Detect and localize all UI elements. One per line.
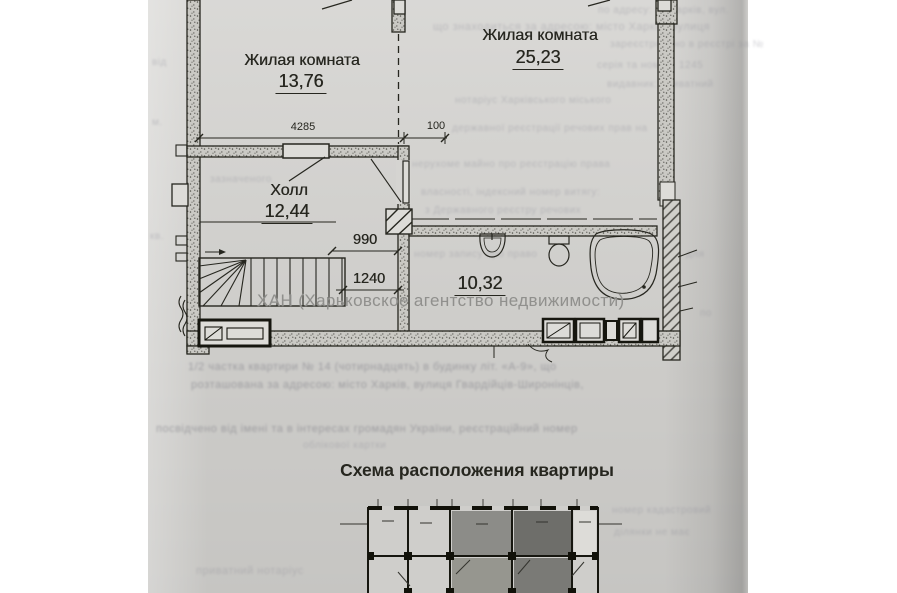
room-area-value: 25,23 — [512, 47, 563, 70]
room-label: Жилая комната — [482, 27, 598, 45]
scanned-document-photo: по адресу: м. Харків, вул. що знаходитьс… — [0, 0, 897, 593]
dimension-label: 1240 — [353, 271, 385, 287]
location-scheme-plan — [340, 499, 622, 593]
vent-shaft — [386, 209, 412, 234]
scheme-title: Схема расположения квартиры — [340, 460, 614, 481]
toilet-icon — [549, 236, 569, 266]
sink-icon — [480, 234, 505, 257]
room-area: 25,23 — [512, 47, 563, 68]
room-area-value: 12,44 — [261, 201, 312, 224]
dimension-label: 100 — [427, 120, 445, 132]
room-area-value: 13,76 — [275, 71, 326, 94]
dimension-label: 4285 — [291, 121, 315, 133]
agency-watermark: ХАН (Харьковское агентство недвижимости) — [257, 291, 625, 311]
cabinet — [199, 320, 270, 346]
bathtub-icon — [590, 230, 658, 300]
appliances — [543, 319, 658, 342]
room-area: 12,44 — [261, 201, 312, 222]
wall-details-left — [172, 145, 188, 336]
room-area: 13,76 — [275, 71, 326, 92]
hall-bath-door — [371, 159, 411, 204]
dimension-label: 990 — [353, 232, 377, 248]
room-label: Холл — [270, 182, 308, 200]
room-label: Жилая комната — [244, 52, 360, 70]
